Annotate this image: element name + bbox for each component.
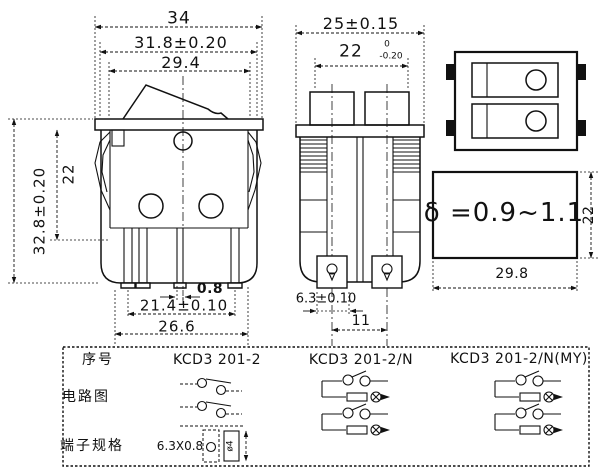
circuit-diagram-model2 (322, 371, 390, 435)
circuit-diagram-model3 (495, 371, 563, 435)
table-row-label-circuit: 电路图 (62, 390, 110, 404)
table-row-label-no: 序号 (82, 353, 114, 367)
dim-terminal-pitch: 11 (352, 314, 371, 328)
dim-cutout-height: 22 (582, 206, 596, 225)
dim-terminal-span: 21.4±0.10 (140, 299, 228, 314)
terminal-spec-text: 6.3X0.8 (157, 440, 203, 452)
dim-overall-height: 32.8±0.20 (33, 167, 48, 255)
dim-cutout-width: 29.8 (495, 267, 528, 281)
table-model-2: KCD3 201-2/N (309, 353, 413, 367)
dim-bottom-width: 26.6 (158, 320, 195, 335)
dim-rocker-width: 29.4 (161, 55, 201, 71)
drawing-sheet: 34 31.8±0.20 29.4 32.8±0.20 22 0.8 21.4±… (0, 0, 605, 471)
side-view (296, 84, 424, 346)
dim-depth-tol-lower: -0.20 (379, 53, 402, 62)
dim-terminal-thickness: 0.8 (197, 282, 223, 296)
table-row-label-terminal: 端子规格 (60, 439, 124, 453)
front-view (95, 76, 263, 304)
face-view (446, 52, 586, 150)
dim-overall-width: 34 (167, 11, 191, 28)
circuit-diagram-model1 (180, 379, 242, 418)
dim-terminal-hole: ø4 (227, 440, 236, 451)
dim-depth-body: 22 (339, 44, 363, 61)
table-model-3: KCD3 201-2/N(MY) (450, 352, 588, 366)
dim-body-height: 22 (62, 163, 77, 184)
dim-flange-width: 31.8±0.20 (134, 35, 228, 51)
side-view-dimensions (296, 25, 424, 330)
dim-depth-overall: 25±0.15 (323, 16, 399, 32)
table-model-1: KCD3 201-2 (173, 353, 261, 367)
dim-depth-tol-upper: 0 (384, 41, 390, 50)
dim-terminal-width: 6.3±0.10 (296, 293, 357, 306)
panel-thickness-note: δ =0.9~1.1 (424, 200, 584, 226)
